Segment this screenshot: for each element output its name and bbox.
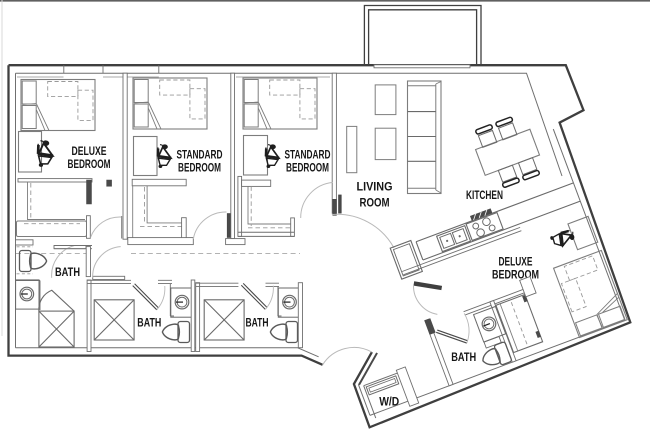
svg-text:STANDARD: STANDARD	[285, 147, 331, 161]
svg-text:W/D: W/D	[379, 396, 399, 409]
svg-text:BATH: BATH	[246, 317, 269, 330]
svg-text:STANDARD: STANDARD	[177, 147, 223, 161]
svg-text:KITCHEN: KITCHEN	[466, 188, 503, 202]
svg-text:ROOM: ROOM	[360, 195, 390, 209]
svg-text:BEDROOM: BEDROOM	[178, 160, 221, 174]
svg-text:DELUXE: DELUXE	[499, 254, 533, 268]
svg-text:BEDROOM: BEDROOM	[286, 160, 329, 174]
svg-text:BEDROOM: BEDROOM	[492, 267, 539, 281]
svg-text:BATH: BATH	[55, 266, 80, 279]
svg-text:BEDROOM: BEDROOM	[68, 157, 111, 171]
svg-text:BATH: BATH	[451, 351, 476, 364]
svg-text:LIVING: LIVING	[357, 179, 393, 193]
svg-text:BATH: BATH	[137, 317, 161, 330]
